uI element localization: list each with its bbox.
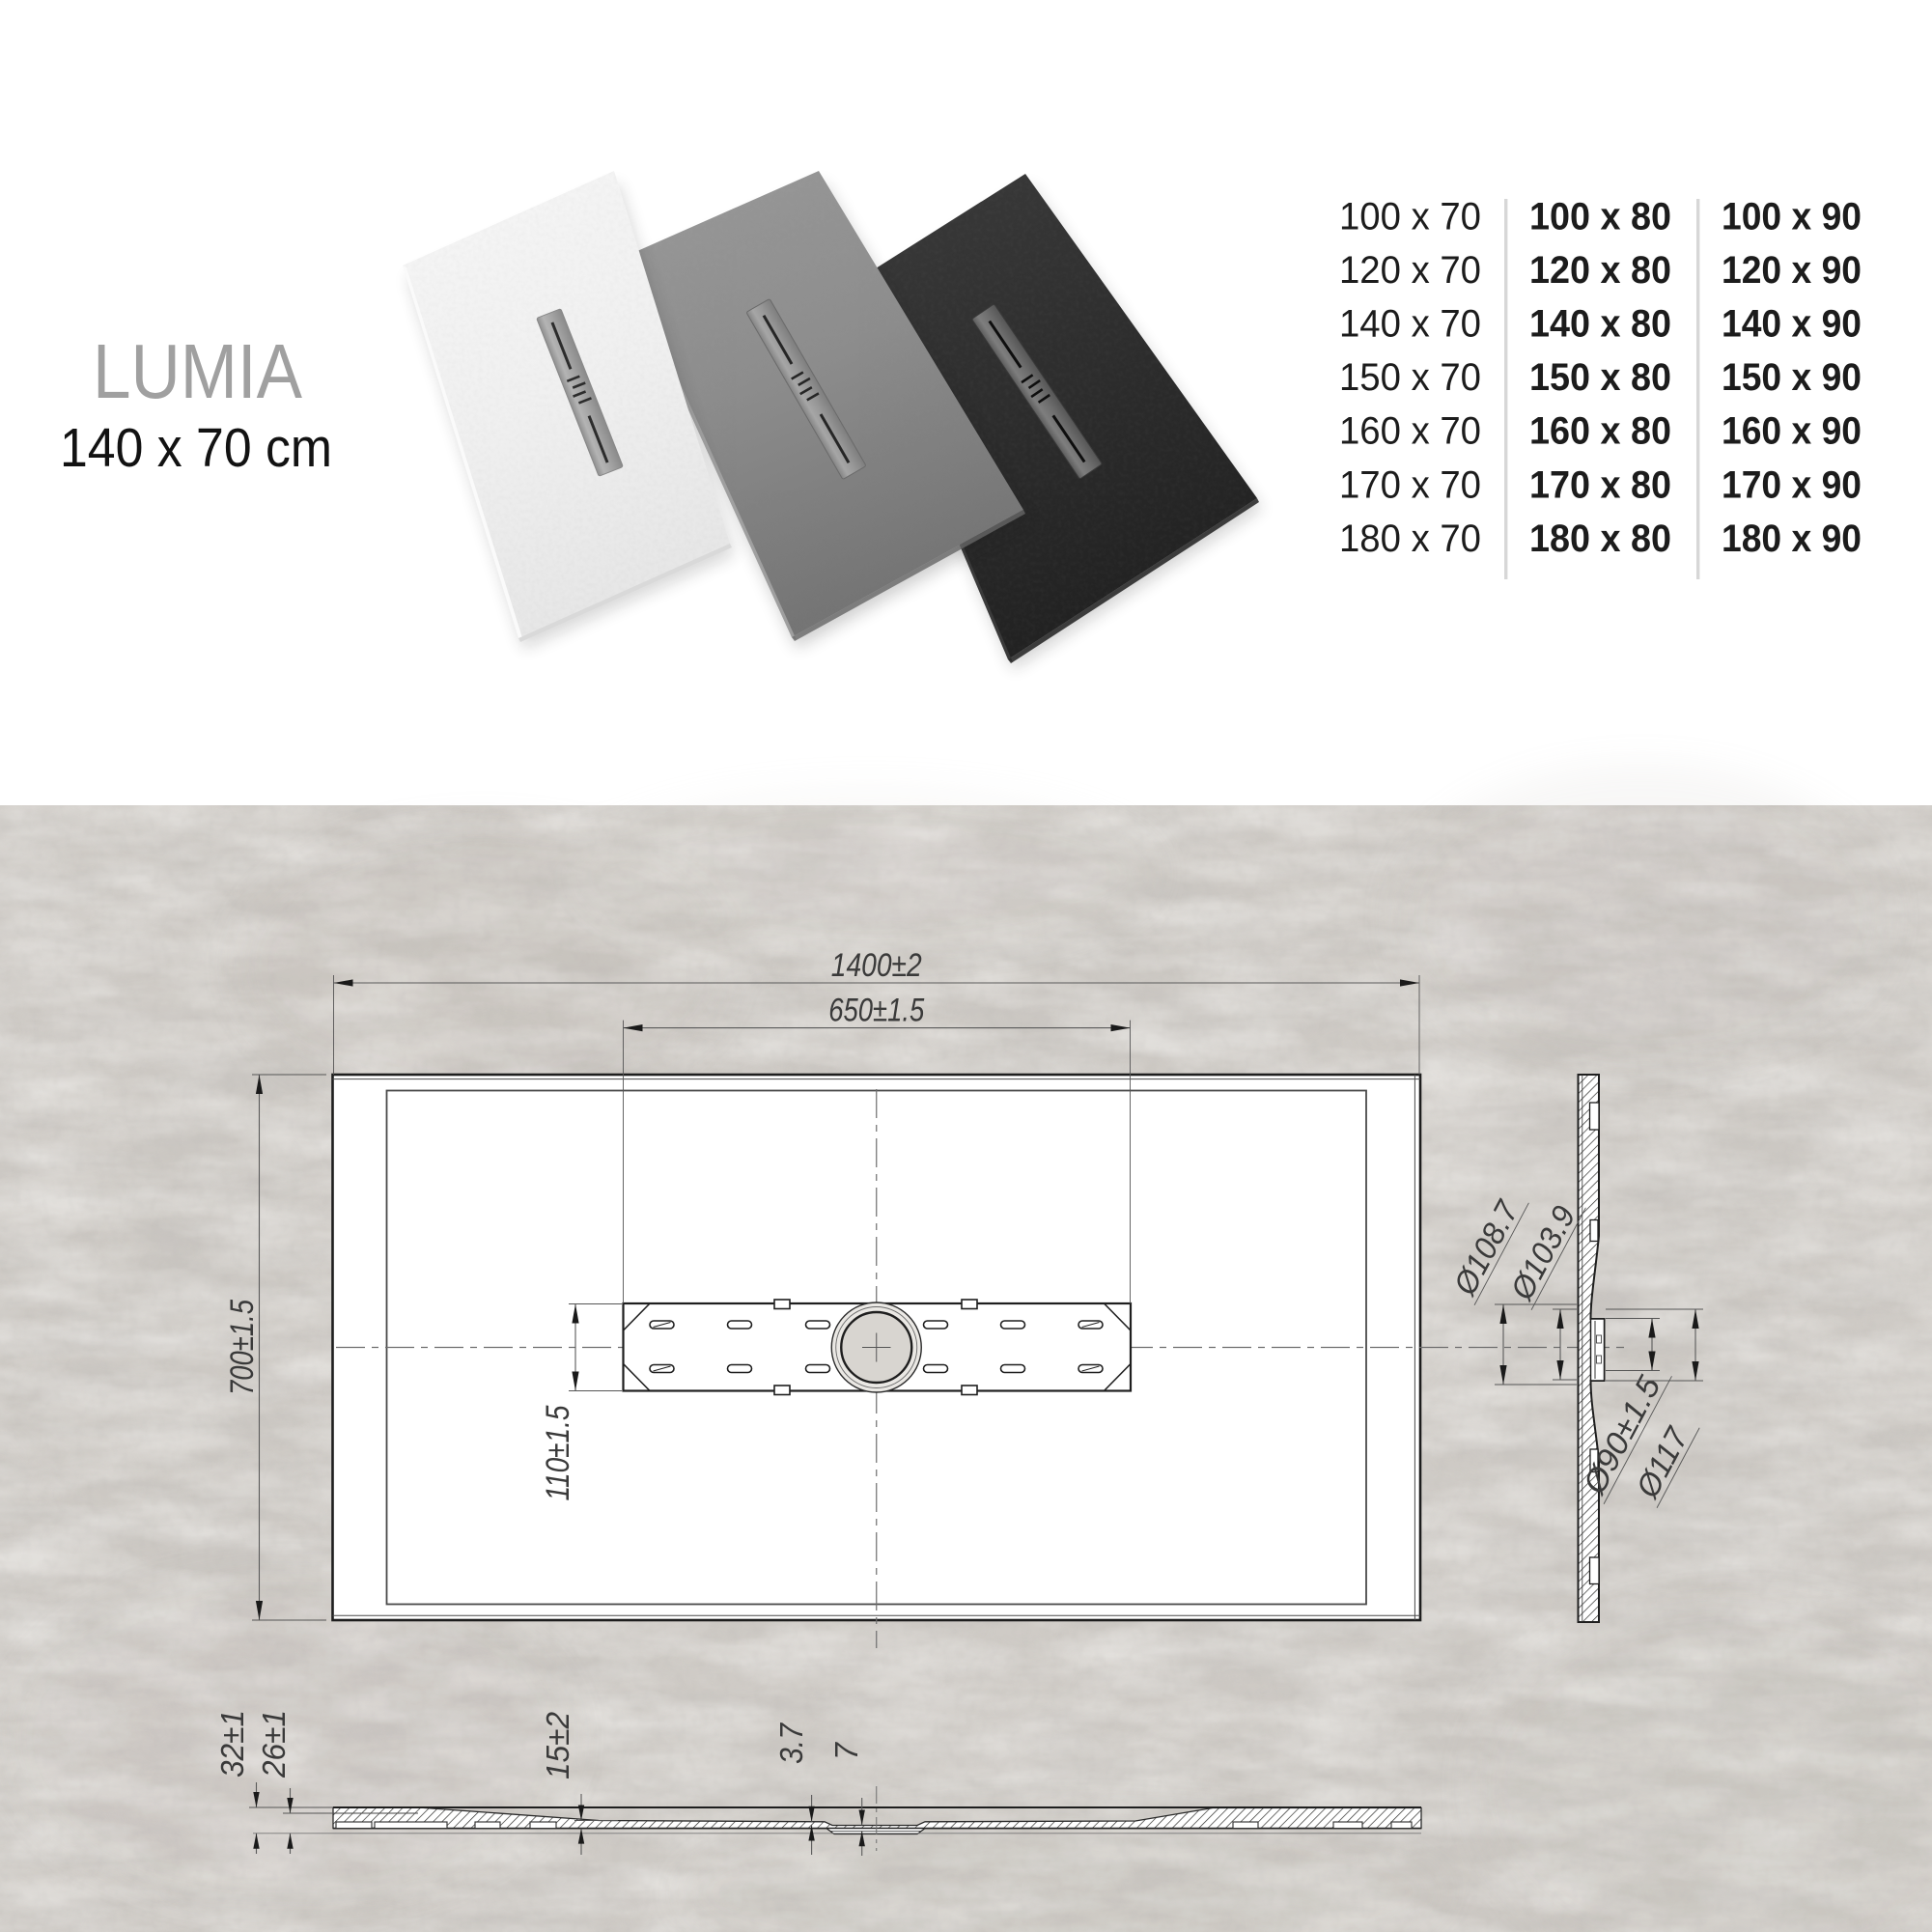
svg-text:15±2: 15±2 [540,1712,575,1779]
svg-text:180 x 70: 180 x 70 [1339,518,1481,560]
svg-text:120 x 80: 120 x 80 [1529,249,1671,292]
svg-text:1400±2: 1400±2 [831,947,922,984]
svg-text:110±1.5: 110±1.5 [540,1405,576,1500]
svg-text:120 x 70: 120 x 70 [1339,249,1481,292]
svg-text:160 x 90: 160 x 90 [1722,410,1862,453]
svg-text:100 x 90: 100 x 90 [1722,195,1862,238]
svg-text:100 x 70: 100 x 70 [1339,195,1481,238]
svg-text:26±1: 26±1 [256,1710,292,1778]
svg-text:150 x 90: 150 x 90 [1722,356,1862,399]
svg-text:700±1.5: 700±1.5 [224,1300,261,1395]
svg-text:180 x 90: 180 x 90 [1722,518,1862,560]
svg-text:150 x 70: 150 x 70 [1339,356,1481,399]
svg-text:120 x 90: 120 x 90 [1722,249,1862,292]
svg-text:170 x 70: 170 x 70 [1339,463,1481,506]
svg-text:180 x 80: 180 x 80 [1529,518,1671,560]
svg-text:160 x 70: 160 x 70 [1339,410,1481,453]
svg-text:140 x 70 cm: 140 x 70 cm [60,417,332,479]
svg-text:160 x 80: 160 x 80 [1529,410,1671,453]
svg-text:32±1: 32±1 [214,1710,250,1778]
svg-text:170 x 80: 170 x 80 [1529,463,1671,506]
svg-text:650±1.5: 650±1.5 [828,993,924,1029]
svg-text:140 x 70: 140 x 70 [1339,303,1481,346]
svg-text:140 x 90: 140 x 90 [1722,303,1862,346]
svg-text:LUMIA: LUMIA [93,328,303,414]
svg-text:170 x 90: 170 x 90 [1722,463,1862,506]
svg-text:140 x 80: 140 x 80 [1529,303,1671,346]
svg-text:3.7: 3.7 [773,1722,809,1764]
svg-text:100 x 80: 100 x 80 [1529,195,1671,238]
svg-text:150 x 80: 150 x 80 [1529,356,1671,399]
svg-text:7: 7 [828,1741,864,1760]
